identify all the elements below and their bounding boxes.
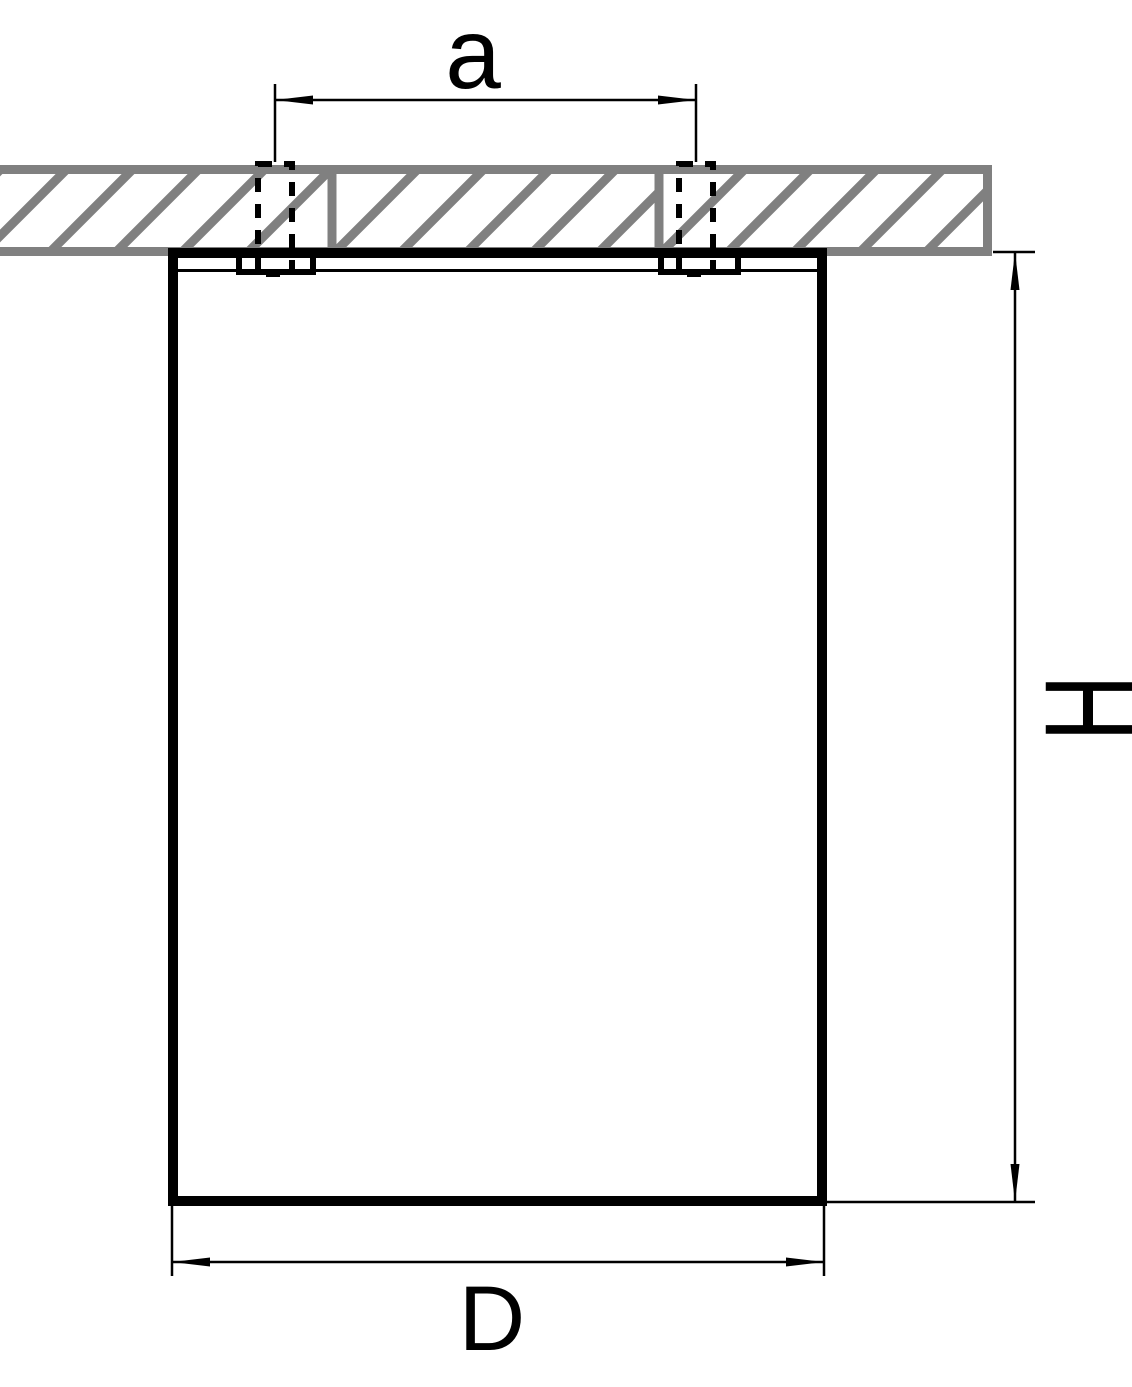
dimension-d: D bbox=[172, 1206, 824, 1370]
dimension-a: a bbox=[275, 0, 696, 110]
technical-drawing: a H D bbox=[0, 0, 1132, 1387]
dimension-h-arrow-bottom bbox=[1011, 1164, 1020, 1202]
ceiling-band bbox=[0, 161, 1017, 255]
ceiling-hatch-middle bbox=[332, 161, 690, 255]
fixture-body bbox=[173, 253, 822, 1201]
dimension-d-arrow-left bbox=[172, 1258, 210, 1267]
fixture-dimension-drawing: a H D bbox=[0, 0, 1132, 1387]
dimension-a-label: a bbox=[445, 0, 501, 110]
ceiling-hatch-left bbox=[0, 161, 339, 255]
dimension-a-arrow-left bbox=[275, 96, 313, 105]
dimension-d-label: D bbox=[459, 1268, 525, 1370]
dimension-a-arrow-right bbox=[658, 96, 696, 105]
dimension-h-label: H bbox=[1018, 675, 1132, 742]
dimension-h: H bbox=[827, 252, 1132, 1202]
dimension-d-arrow-right bbox=[786, 1258, 824, 1267]
dimension-h-arrow-top bbox=[1011, 252, 1020, 290]
